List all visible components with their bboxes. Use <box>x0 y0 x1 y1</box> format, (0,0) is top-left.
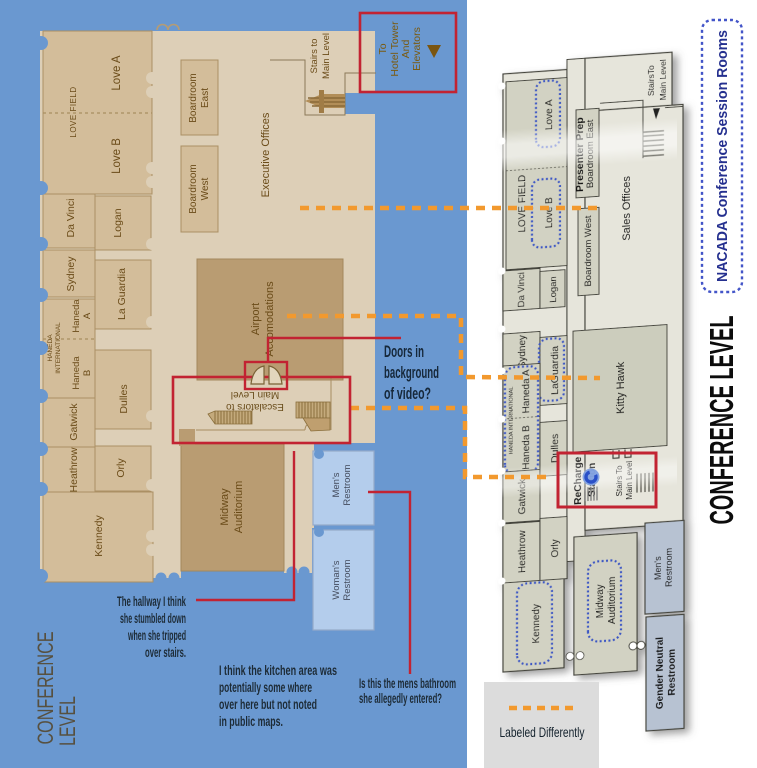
svg-text:Da Vinci: Da Vinci <box>65 199 77 238</box>
svg-text:Restroom: Restroom <box>342 464 353 505</box>
svg-text:Executive Offices: Executive Offices <box>260 112 272 197</box>
svg-text:LaGuardia: LaGuardia <box>549 345 561 395</box>
svg-text:over here but not noted: over here but not noted <box>219 697 317 712</box>
svg-text:Kitty Hawk: Kitty Hawk <box>615 361 627 414</box>
svg-text:LOVE FIELD: LOVE FIELD <box>69 86 78 137</box>
svg-text:she stumbled down: she stumbled down <box>120 611 186 626</box>
svg-text:in public maps.: in public maps. <box>219 714 283 729</box>
svg-text:Men's: Men's <box>331 472 342 497</box>
svg-text:Men's: Men's <box>653 555 663 580</box>
svg-text:Haneda B: Haneda B <box>521 424 532 470</box>
svg-text:Orly: Orly <box>550 539 561 558</box>
svg-text:Haneda: Haneda <box>71 299 82 333</box>
svg-text:Gender Neutral: Gender Neutral <box>655 636 666 709</box>
svg-text:Boardroom: Boardroom <box>188 73 199 122</box>
svg-text:of video?: of video? <box>384 384 431 403</box>
svg-text:NACADA Conference Session Room: NACADA Conference Session Rooms <box>714 30 731 282</box>
svg-text:StairsTo: StairsTo <box>646 65 656 97</box>
svg-text:Heathrow: Heathrow <box>517 529 528 573</box>
svg-text:when she tripped: when she tripped <box>127 628 186 643</box>
svg-text:Haneda: Haneda <box>71 356 82 390</box>
svg-text:Da Vinci: Da Vinci <box>516 272 527 308</box>
svg-text:LOVE FIELD: LOVE FIELD <box>517 174 528 233</box>
svg-text:Auditorium: Auditorium <box>233 481 245 534</box>
svg-text:Love B: Love B <box>111 138 123 174</box>
svg-text:Sales Offices: Sales Offices <box>621 175 633 241</box>
svg-text:Restroom: Restroom <box>342 559 353 600</box>
svg-text:Restroom: Restroom <box>667 648 678 695</box>
svg-text:Airport: Airport <box>250 303 262 335</box>
svg-text:B: B <box>82 370 93 376</box>
svg-text:Heathrow: Heathrow <box>68 447 80 492</box>
svg-text:Midway: Midway <box>219 488 231 526</box>
svg-text:Love B: Love B <box>544 197 555 229</box>
svg-text:Love A: Love A <box>544 99 555 131</box>
svg-text:INTERNATIONAL: INTERNATIONAL <box>55 322 62 374</box>
svg-text:Doors in: Doors in <box>384 342 424 361</box>
svg-text:La Guardia: La Guardia <box>116 268 128 320</box>
svg-text:The hallway I think: The hallway I think <box>117 594 186 609</box>
svg-text:Love A: Love A <box>111 55 123 90</box>
svg-text:CONFERENCE LEVEL: CONFERENCE LEVEL <box>703 316 740 525</box>
svg-text:Kennedy: Kennedy <box>93 515 105 557</box>
svg-text:A: A <box>82 312 93 319</box>
svg-text:LEVEL: LEVEL <box>55 696 80 746</box>
svg-text:Orly: Orly <box>115 458 127 478</box>
svg-text:HANEDA: HANEDA <box>47 334 54 362</box>
svg-text:Accomodations: Accomodations <box>264 281 276 357</box>
svg-text:Gatwick: Gatwick <box>68 403 80 441</box>
svg-text:Escalators to: Escalators to <box>226 401 284 412</box>
svg-text:Logan: Logan <box>112 208 124 237</box>
svg-text:Boardroom: Boardroom <box>188 164 199 213</box>
svg-text:Sydney: Sydney <box>65 256 77 292</box>
svg-text:Dulles: Dulles <box>118 384 130 413</box>
svg-text:HANEDA INTERNATIONAL: HANEDA INTERNATIONAL <box>509 386 515 454</box>
svg-text:Auditorium: Auditorium <box>607 576 618 625</box>
svg-text:Main Level: Main Level <box>658 59 668 101</box>
svg-text:Is this the mens bathroom: Is this the mens bathroom <box>359 676 456 691</box>
svg-text:Labeled Differently: Labeled Differently <box>500 724 585 740</box>
svg-text:Stairs to: Stairs to <box>309 39 320 74</box>
svg-text:potentially some where: potentially some where <box>219 680 312 695</box>
svg-text:I think the kitchen area was: I think the kitchen area was <box>219 663 337 678</box>
svg-text:Kennedy: Kennedy <box>531 604 542 644</box>
svg-text:Main Level: Main Level <box>231 389 279 400</box>
svg-text:To: To <box>377 43 389 54</box>
svg-text:Main Level: Main Level <box>321 33 332 79</box>
svg-text:Elevators: Elevators <box>411 27 423 71</box>
svg-text:West: West <box>200 177 211 200</box>
svg-text:Midway: Midway <box>595 584 606 619</box>
svg-text:Restroom: Restroom <box>664 548 674 588</box>
svg-text:East: East <box>200 88 211 108</box>
svg-text:Boardroom West: Boardroom West <box>583 215 594 287</box>
svg-text:Sydney: Sydney <box>517 335 528 369</box>
svg-text:over stairs.: over stairs. <box>145 645 186 660</box>
svg-text:Woman's: Woman's <box>331 560 342 599</box>
svg-text:background: background <box>384 363 439 382</box>
svg-text:she allegedly entered?: she allegedly entered? <box>359 691 442 706</box>
svg-text:Logan: Logan <box>548 276 559 303</box>
